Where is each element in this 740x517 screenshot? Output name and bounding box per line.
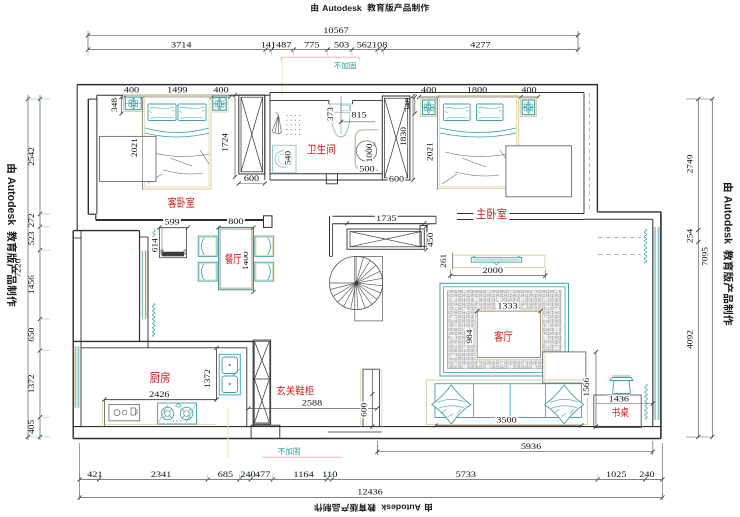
svg-text:1456: 1456 [27, 275, 36, 294]
svg-text:2021: 2021 [130, 138, 139, 157]
svg-text:2021: 2021 [425, 142, 434, 161]
svg-text:3500: 3500 [496, 416, 516, 425]
svg-text:503: 503 [334, 40, 349, 49]
svg-text:600: 600 [244, 174, 259, 183]
svg-text:5936: 5936 [521, 442, 541, 451]
svg-text:400: 400 [521, 86, 536, 95]
svg-text:614: 614 [150, 238, 159, 252]
svg-text:Autodesk: Autodesk [721, 196, 733, 244]
svg-text:Autodesk: Autodesk [322, 3, 362, 13]
svg-text:1333: 1333 [497, 301, 517, 310]
svg-text:540: 540 [283, 151, 292, 165]
svg-text:2542: 2542 [27, 147, 36, 166]
svg-text:800: 800 [228, 217, 243, 226]
svg-text:10567: 10567 [323, 26, 349, 35]
svg-text:405: 405 [27, 420, 36, 434]
svg-text:2000: 2000 [483, 266, 503, 275]
svg-text:7220: 7220 [14, 259, 23, 278]
svg-text:600: 600 [389, 175, 404, 184]
svg-text:1000: 1000 [365, 144, 374, 163]
svg-text:2749: 2749 [686, 155, 695, 174]
svg-text:5733: 5733 [456, 470, 476, 479]
svg-text:1566: 1566 [582, 378, 591, 397]
svg-text:272: 272 [27, 213, 36, 227]
svg-text:400: 400 [421, 86, 436, 95]
svg-text:240: 240 [639, 470, 654, 479]
svg-text:1436: 1436 [609, 394, 629, 403]
svg-text:400: 400 [124, 86, 139, 95]
svg-text:1830: 1830 [399, 127, 408, 146]
svg-text:Autodesk: Autodesk [5, 177, 17, 225]
svg-text:599: 599 [164, 218, 179, 227]
svg-text:500: 500 [359, 165, 374, 174]
svg-text:2588: 2588 [302, 399, 322, 408]
svg-text:477: 477 [255, 470, 270, 479]
svg-text:421: 421 [87, 470, 102, 479]
svg-text:650: 650 [27, 328, 36, 342]
svg-text:373: 373 [326, 107, 335, 121]
svg-text:12436: 12436 [357, 488, 383, 497]
svg-text:450: 450 [426, 233, 435, 247]
svg-text:1372: 1372 [203, 369, 212, 388]
svg-text:775: 775 [304, 40, 319, 49]
svg-text:254: 254 [686, 229, 695, 243]
svg-text:1724: 1724 [221, 133, 230, 152]
svg-text:1164: 1164 [293, 470, 313, 479]
svg-text:1735: 1735 [376, 214, 396, 223]
svg-text:1800: 1800 [467, 86, 487, 95]
svg-text:2341: 2341 [151, 470, 171, 479]
svg-text:1372: 1372 [27, 374, 36, 393]
svg-text:348: 348 [110, 98, 119, 112]
svg-text:110: 110 [322, 470, 337, 479]
svg-text:815: 815 [351, 110, 366, 119]
svg-text:4277: 4277 [470, 40, 490, 49]
svg-text:2426: 2426 [149, 390, 169, 399]
svg-text:685: 685 [218, 470, 233, 479]
svg-text:261: 261 [439, 254, 448, 268]
svg-text:400: 400 [213, 86, 228, 95]
svg-text:4092: 4092 [686, 330, 695, 349]
svg-text:1025: 1025 [606, 470, 626, 479]
svg-text:141487: 141487 [261, 40, 292, 49]
svg-text:600: 600 [360, 403, 369, 417]
svg-text:Autodesk: Autodesk [381, 502, 421, 512]
svg-text:7095: 7095 [700, 247, 709, 266]
svg-text:984: 984 [465, 330, 474, 344]
svg-text:1499: 1499 [167, 86, 187, 95]
svg-text:3714: 3714 [171, 40, 191, 49]
svg-text:240: 240 [240, 470, 255, 479]
svg-text:562108: 562108 [357, 40, 388, 49]
svg-text:523: 523 [27, 231, 36, 245]
